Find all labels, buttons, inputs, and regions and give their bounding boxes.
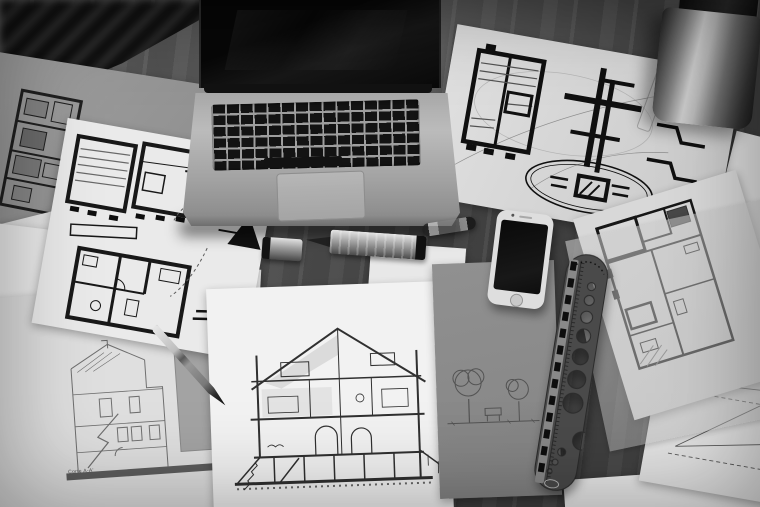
desk-photo: Corte A-A' (0, 0, 760, 507)
travel-mug (649, 0, 760, 133)
section-sketch-sheet (206, 281, 454, 507)
smartphone (486, 209, 554, 310)
phone-camera (511, 214, 514, 217)
cap-end-band (261, 237, 271, 260)
laptop-hinge (204, 84, 432, 93)
laptop-screen (199, 0, 441, 88)
marker-pen-cap (261, 237, 302, 262)
travel-mug-body (651, 7, 760, 131)
phone-home-button (509, 293, 523, 307)
screen-reflection (225, 10, 408, 70)
laptop-body (183, 93, 460, 226)
laptop-trackpad (276, 170, 366, 221)
phone-screen (493, 219, 548, 294)
hand-drawn-building-section (218, 291, 440, 503)
marker-end-band (415, 236, 427, 261)
phone-speaker (519, 216, 532, 220)
marker-tip (306, 235, 333, 248)
laptop-spacebar (264, 156, 342, 168)
